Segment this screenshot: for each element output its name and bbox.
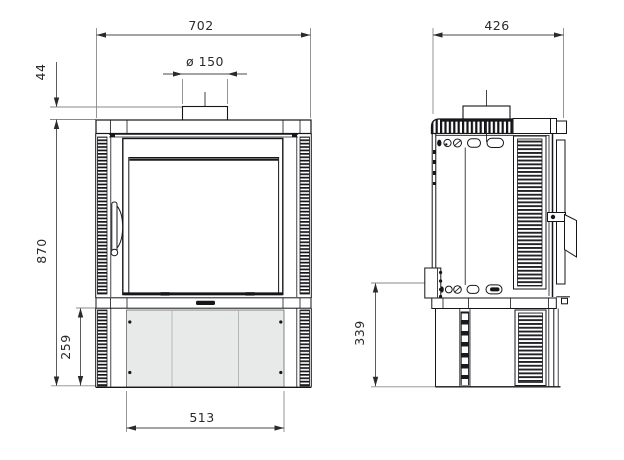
arrowhead-left <box>173 71 183 76</box>
dim-label-pedestal-side-height: 339 <box>352 320 367 345</box>
arrowhead-right <box>275 425 285 430</box>
arrowhead-down <box>373 377 378 387</box>
plinth-band-front <box>96 298 311 308</box>
arrowhead-right <box>301 32 311 37</box>
stove-drawing-svg: 702 ø 150 44 870 <box>0 0 624 460</box>
flue-collar-side <box>463 90 510 142</box>
handle-knob <box>111 249 118 256</box>
arrowhead-left <box>127 425 137 430</box>
handle-grip <box>565 215 577 258</box>
door-handle-front <box>111 202 123 256</box>
air-intake-bracket <box>425 268 442 298</box>
vent-holes-bottom-row <box>440 285 502 294</box>
dim-label-pedestal-width: 513 <box>189 410 214 425</box>
dim-pedestal-side-height: 339 <box>352 283 436 387</box>
dim-label-front-width: 702 <box>188 18 213 33</box>
dim-pedestal-height: 259 <box>58 308 96 386</box>
dim-label-collar-height: 44 <box>33 64 48 81</box>
arrowhead-down <box>78 376 83 386</box>
side-grille-lower <box>515 310 546 386</box>
front-view: 702 ø 150 44 870 <box>33 18 311 432</box>
side-view: 426 339 <box>352 18 577 387</box>
dim-label-pedestal-height: 259 <box>58 334 73 359</box>
arrowhead-right <box>554 32 564 37</box>
pedestal-slot-column <box>460 309 470 387</box>
pedestal-front <box>96 308 312 387</box>
dim-collar-height: 44 <box>33 62 182 120</box>
arrowhead-right <box>228 71 238 76</box>
dim-pedestal-width: 513 <box>127 391 285 432</box>
dim-label-flue-diameter: ø 150 <box>186 54 224 69</box>
arrowhead-up <box>373 283 378 293</box>
pedestal-glass-panel <box>127 310 285 387</box>
top-plate-front <box>96 120 311 137</box>
arrowhead-left <box>97 32 107 37</box>
plinth-band-side <box>432 297 570 309</box>
door-latch-mark <box>246 292 255 295</box>
handle-bracket <box>548 213 566 222</box>
arrowhead-down <box>54 377 59 387</box>
top-plate-side <box>513 119 567 134</box>
dim-label-depth: 426 <box>484 18 509 33</box>
dim-depth: 426 <box>433 18 564 118</box>
door-latch-mark <box>161 292 170 295</box>
air-control-slider <box>196 301 215 305</box>
arrowhead-up <box>54 120 59 130</box>
vent-holes-top-row <box>437 138 503 147</box>
arrowhead-down <box>54 98 59 108</box>
arrowhead-left <box>433 32 443 37</box>
stove-side <box>425 90 577 387</box>
top-louver-band <box>432 119 514 134</box>
stove-door <box>123 139 283 296</box>
dim-label-overall-height: 870 <box>34 238 49 263</box>
handle-bar <box>112 202 117 252</box>
handle-blade <box>117 206 123 248</box>
stove-front <box>96 92 312 387</box>
side-grille-right <box>297 134 312 299</box>
side-grille-upper <box>514 136 547 289</box>
arrowhead-up <box>78 308 83 318</box>
pedestal-side <box>436 309 561 387</box>
handle-pivot <box>551 215 555 219</box>
side-grille-left <box>96 134 111 299</box>
technical-drawing-page: 702 ø 150 44 870 <box>0 0 624 460</box>
